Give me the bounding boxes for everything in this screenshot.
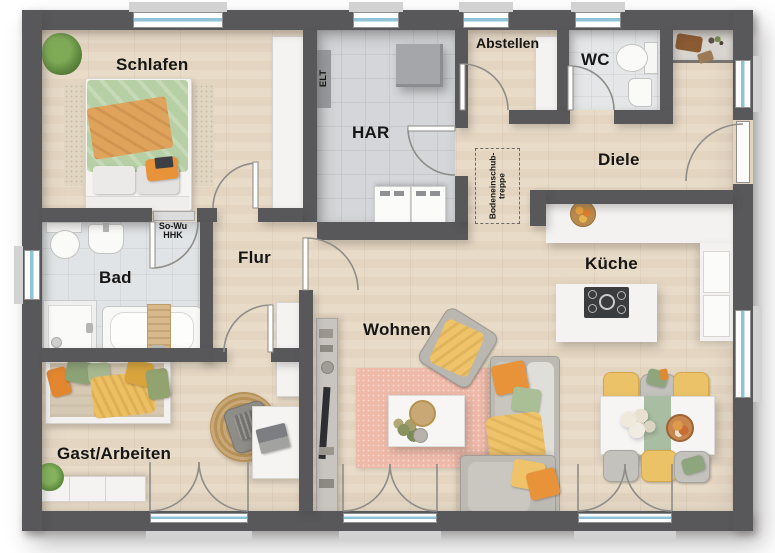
room-label-flur: Flur (238, 248, 271, 268)
wall-abstellen-east (557, 30, 569, 110)
room-label-schlafen: Schlafen (116, 55, 188, 75)
faucet (103, 223, 109, 232)
shower-faucet (86, 323, 93, 333)
wall-schlafen-har (303, 30, 317, 222)
washer-drawer (380, 191, 390, 196)
window-sill (129, 2, 227, 12)
cabinet-door (703, 251, 730, 293)
window-schlafen (133, 12, 223, 28)
wall-wc-east (660, 30, 673, 110)
annotation-elt: ELT (294, 72, 354, 84)
cooktop (584, 287, 629, 318)
room-label-wc: WC (581, 50, 610, 70)
burner (617, 305, 626, 314)
window-sill (753, 306, 762, 402)
cabinet-door (703, 295, 730, 337)
wall-har-east (455, 30, 468, 128)
har-unit (396, 44, 443, 87)
bed-pillow (93, 166, 135, 194)
wall-bad-south (42, 348, 213, 362)
toilet-bad-bowl (50, 230, 80, 259)
dining-chair-yellow (641, 450, 677, 482)
books (319, 447, 334, 455)
entry-door-leaf (736, 121, 750, 183)
flower-bouquet (616, 405, 658, 441)
wall-gast-wohnen (299, 290, 313, 511)
wall-gast-north (213, 348, 227, 362)
door-sill (339, 531, 441, 540)
window-wc (575, 12, 621, 28)
window-sill (14, 246, 23, 304)
french-door-wohnen (343, 513, 437, 523)
floor-plan: Bodeneinschub- treppe Schlafen HAR Abste… (0, 0, 775, 553)
sink-bad (88, 224, 124, 254)
room-label-kueche: Küche (585, 254, 638, 274)
room-label-har: HAR (352, 123, 389, 143)
annotation-sowu-hhk: So-Wu HHK (150, 222, 196, 240)
wall-schlafen-south (42, 208, 152, 222)
napkin-orange (659, 368, 669, 380)
decor-diele (706, 34, 724, 47)
fruit-bowl (570, 201, 596, 227)
window-bad (24, 250, 40, 300)
room-label-diele: Diele (598, 150, 640, 170)
window-abstellen (463, 12, 509, 28)
room-label-abstellen: Abstellen (476, 35, 539, 51)
window-kueche (735, 310, 751, 398)
kitchen-wall-cabinet (700, 243, 733, 341)
sink-wc (628, 78, 652, 107)
burner (617, 291, 626, 300)
window-sill (459, 2, 513, 12)
wall-har-east (455, 176, 468, 222)
washer (411, 186, 446, 224)
shower-drain (51, 337, 62, 348)
wall-schlafen-south (258, 208, 303, 222)
books (319, 329, 333, 338)
door-sill (146, 531, 252, 540)
toilet-wc-bowl (616, 44, 648, 72)
wall-har-south (317, 222, 468, 240)
french-door-dining (578, 513, 672, 523)
wall-schlafen-south (197, 208, 217, 222)
washer-drawer (394, 191, 404, 196)
burner (588, 304, 597, 313)
burner (599, 294, 615, 310)
books (319, 479, 334, 488)
door-sill (574, 531, 676, 540)
table-vase (413, 428, 428, 443)
bed-tablet (154, 156, 173, 169)
dining-bowl (666, 414, 694, 442)
daybed-pillow-olive (145, 368, 171, 401)
french-door-gast (150, 513, 248, 523)
wall-gast-north (271, 348, 299, 362)
washer (374, 186, 411, 224)
washer-drawer (416, 191, 426, 196)
table-tray (409, 400, 436, 427)
wall-bad-east (200, 222, 213, 362)
window-diele (735, 60, 751, 108)
wall-kueche-north (530, 190, 733, 204)
radiator-symbol (153, 211, 195, 221)
window-sill (349, 2, 403, 12)
washer-drawer (430, 191, 440, 196)
room-label-wohnen: Wohnen (363, 320, 431, 340)
room-label-bad: Bad (99, 268, 132, 288)
sofa-pillow-green (510, 386, 541, 414)
dining-chair-gray (603, 450, 639, 482)
speaker (321, 361, 334, 374)
tv-sideboard (316, 318, 338, 516)
wall-kueche-stub (530, 190, 546, 226)
attic-stairs-box: Bodeneinschub- treppe (475, 148, 520, 224)
wall-diele-north (509, 110, 570, 124)
wall-diele-north (614, 110, 673, 124)
burner (588, 290, 597, 299)
window-sill (571, 2, 625, 12)
window-sill (753, 56, 762, 112)
wardrobe-schlafen (272, 36, 304, 210)
room-label-gast: Gast/Arbeiten (57, 444, 171, 464)
window-har (353, 12, 399, 28)
plant-schlafen (42, 33, 82, 75)
books (320, 345, 333, 352)
attic-stairs-label: Bodeneinschub- treppe (489, 153, 507, 220)
